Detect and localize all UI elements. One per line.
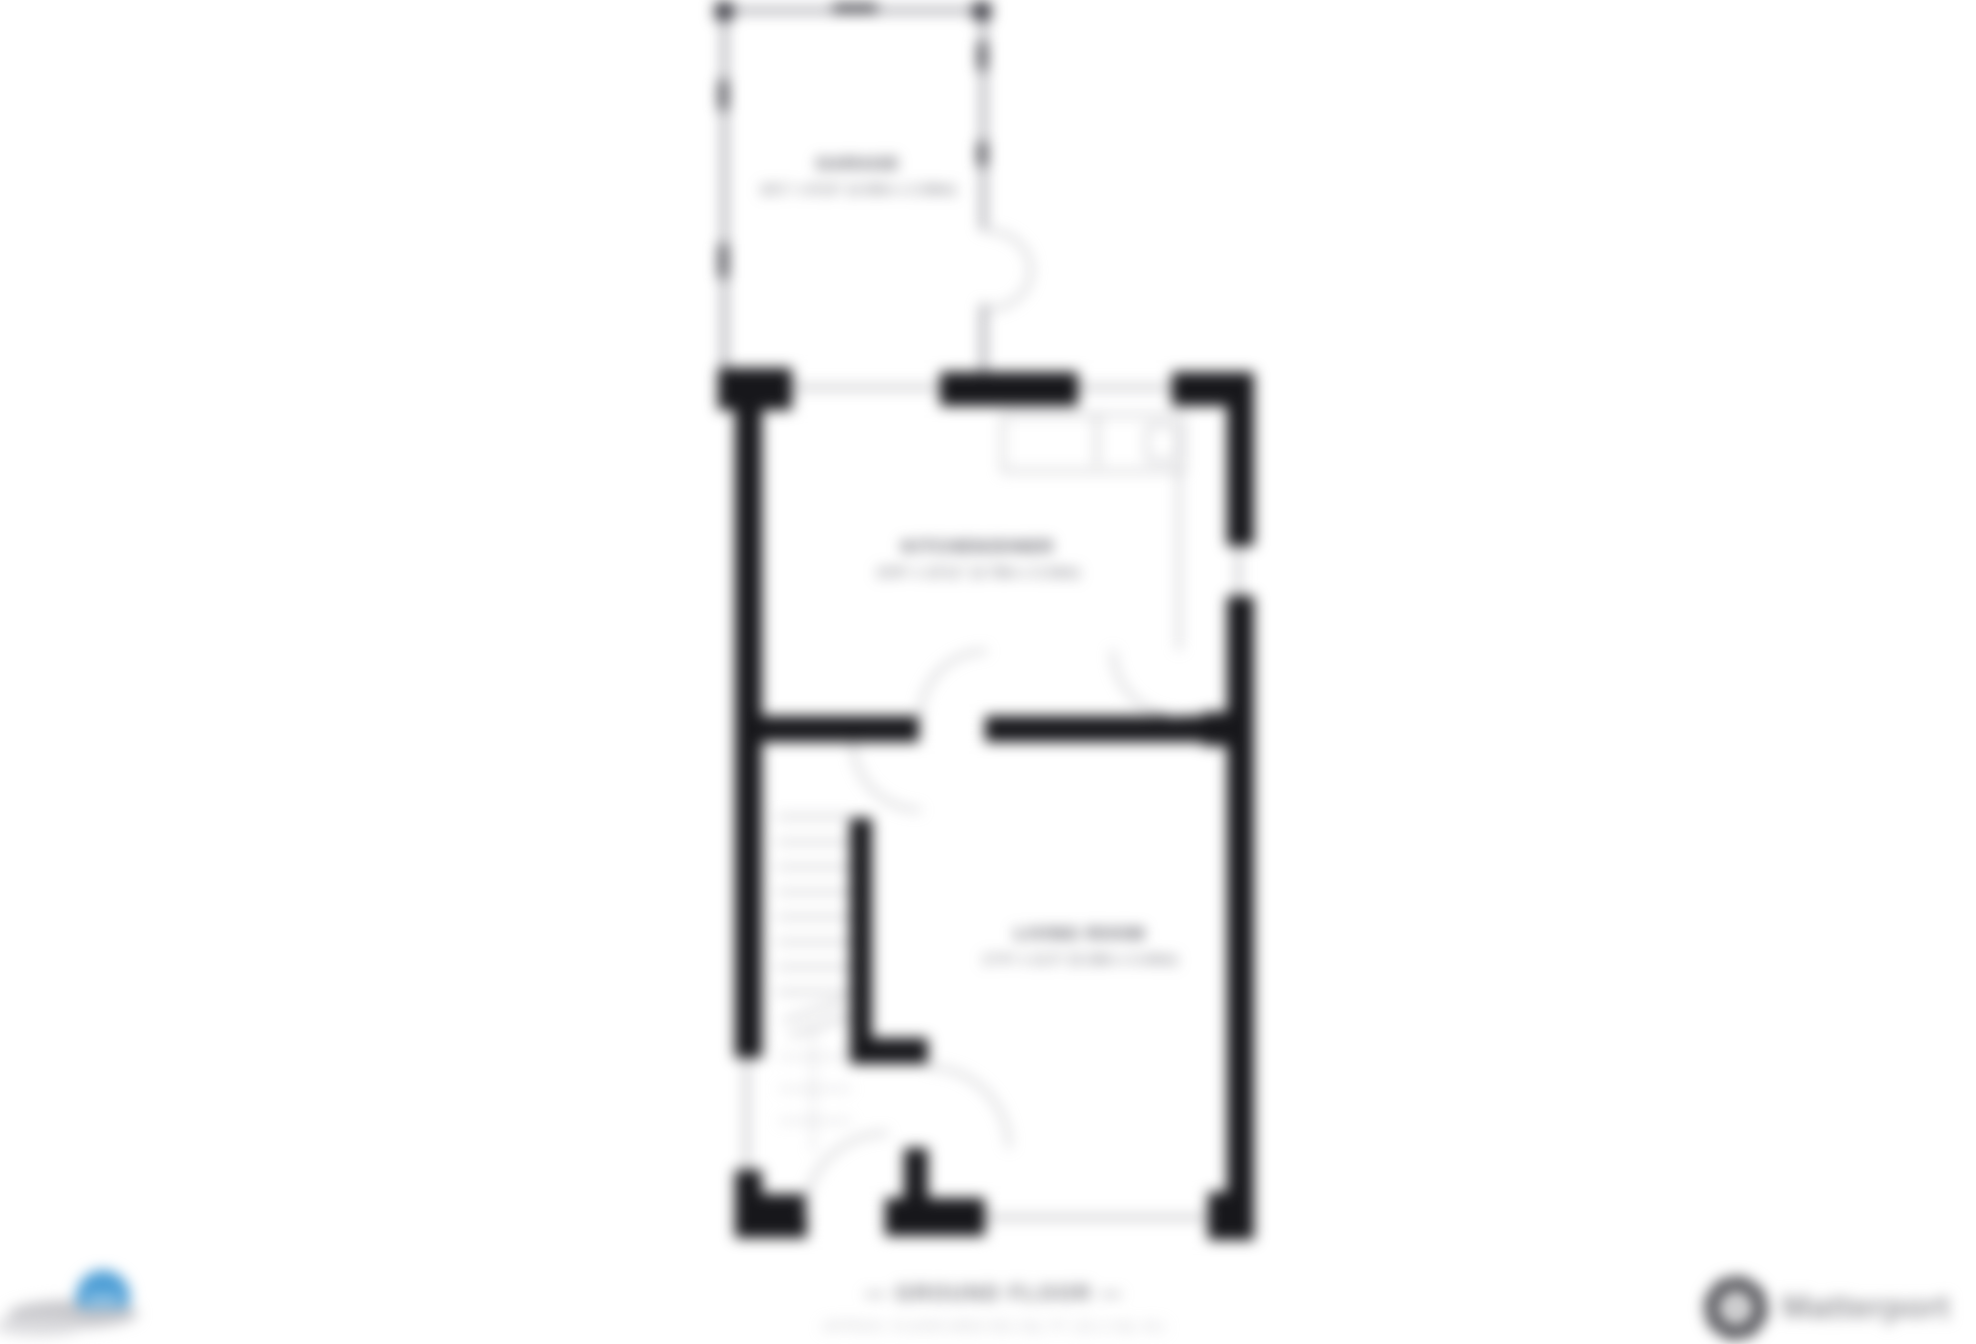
- kitchen-door-gap: [919, 716, 985, 742]
- counter-divider-line: [1096, 416, 1098, 466]
- stair-direction-line: [812, 1030, 814, 1150]
- garage-room: [715, 2, 993, 400]
- front-window-line: [985, 1216, 1212, 1219]
- stair-tread: [777, 966, 851, 968]
- front-wall-segment: [885, 1198, 985, 1236]
- living-room-label: LIVING ROOM 17'4" x 11'2" (5.28m x 3.40m…: [880, 924, 1280, 967]
- floor-area-note: APPROX. FLOOR AREA 551 SQ. FT. (51.2 SQ.…: [694, 1318, 1294, 1334]
- stair-tread-faint: [779, 1056, 851, 1058]
- hall-door-arc-upper: [852, 742, 921, 811]
- floor-title: — GROUND FLOOR —: [694, 1282, 1294, 1306]
- rear-opening: [792, 372, 940, 406]
- provider-icon-core: [1731, 1303, 1741, 1313]
- room-name: GARAGE: [658, 154, 1058, 174]
- stair-tread: [777, 991, 851, 993]
- stair-wall-horizontal: [850, 1038, 928, 1064]
- agency-logo-swoosh-light: [0, 1316, 84, 1336]
- exterior-wall-right: [1227, 372, 1254, 1240]
- stair-tread: [777, 816, 851, 818]
- corner-block-bottom-left: [735, 1194, 807, 1238]
- provider-logo: Matterport: [1700, 1270, 1976, 1344]
- garage-wall-tick: [719, 244, 728, 278]
- agency-logo: [0, 1260, 170, 1344]
- pantry-door-arc: [1112, 650, 1180, 718]
- garage-door-arc: [988, 230, 1032, 310]
- stair-tread: [777, 941, 851, 943]
- stair-tread: [777, 866, 851, 868]
- garage-corner-post: [715, 2, 733, 20]
- hall-door-arc: [928, 1066, 1010, 1148]
- divider-right-block: [1203, 712, 1254, 746]
- provider-camera-icon: [1704, 1276, 1768, 1340]
- hall-wall-lower: [904, 1148, 928, 1234]
- garage-wall-tick: [978, 42, 987, 70]
- left-window-gap: [735, 1058, 762, 1170]
- rear-opening-line: [792, 386, 940, 389]
- right-window-gap: [1227, 546, 1254, 596]
- stair-tread: [777, 916, 851, 918]
- corner-block-bottom-right: [1208, 1192, 1254, 1240]
- room-dimensions: 15'8" x 10'11" (4.78m x 3.33m): [778, 564, 1178, 580]
- stair-tread: [777, 891, 851, 893]
- garage-wall-tick: [719, 80, 728, 110]
- garage-window-tick: [833, 4, 877, 13]
- stair-break-line: [789, 1015, 850, 1037]
- kitchen-sink: [1146, 424, 1178, 462]
- agency-logo-house-detail: [86, 1297, 120, 1302]
- kitchen-door-arc: [919, 650, 987, 718]
- stair-tread-faint: [779, 1120, 851, 1122]
- stair-break-line: [783, 1000, 844, 1022]
- garage-corner-post: [973, 2, 991, 20]
- kitchen-window-line: [1078, 386, 1172, 389]
- stair-tread: [777, 841, 851, 843]
- provider-wordmark: Matterport: [1782, 1288, 1950, 1326]
- room-name: KITCHEN/DINER: [778, 537, 1178, 557]
- room-dimensions: 16'1" x 8'10" (4.90m x 2.69m): [658, 181, 1058, 197]
- room-dimensions: 17'4" x 11'2" (5.28m x 3.40m): [880, 951, 1280, 967]
- floorplan-image: GARAGE 16'1" x 8'10" (4.90m x 2.69m) KIT…: [0, 0, 1976, 1344]
- kitchen-window-gap: [1078, 372, 1172, 406]
- agency-logo-house-icon: [76, 1270, 130, 1308]
- stair-wall-vertical: [850, 818, 872, 1050]
- kitchen-label: KITCHEN/DINER 15'8" x 10'11" (4.78m x 3.…: [778, 537, 1178, 580]
- stair-tread-faint: [779, 1088, 851, 1090]
- garage-label: GARAGE 16'1" x 8'10" (4.90m x 2.69m): [658, 154, 1058, 197]
- room-name: LIVING ROOM: [880, 924, 1280, 944]
- right-window-line: [1237, 546, 1240, 596]
- left-window-line: [745, 1058, 748, 1170]
- pantry-line: [1178, 468, 1180, 650]
- garage-wall-left: [722, 8, 727, 400]
